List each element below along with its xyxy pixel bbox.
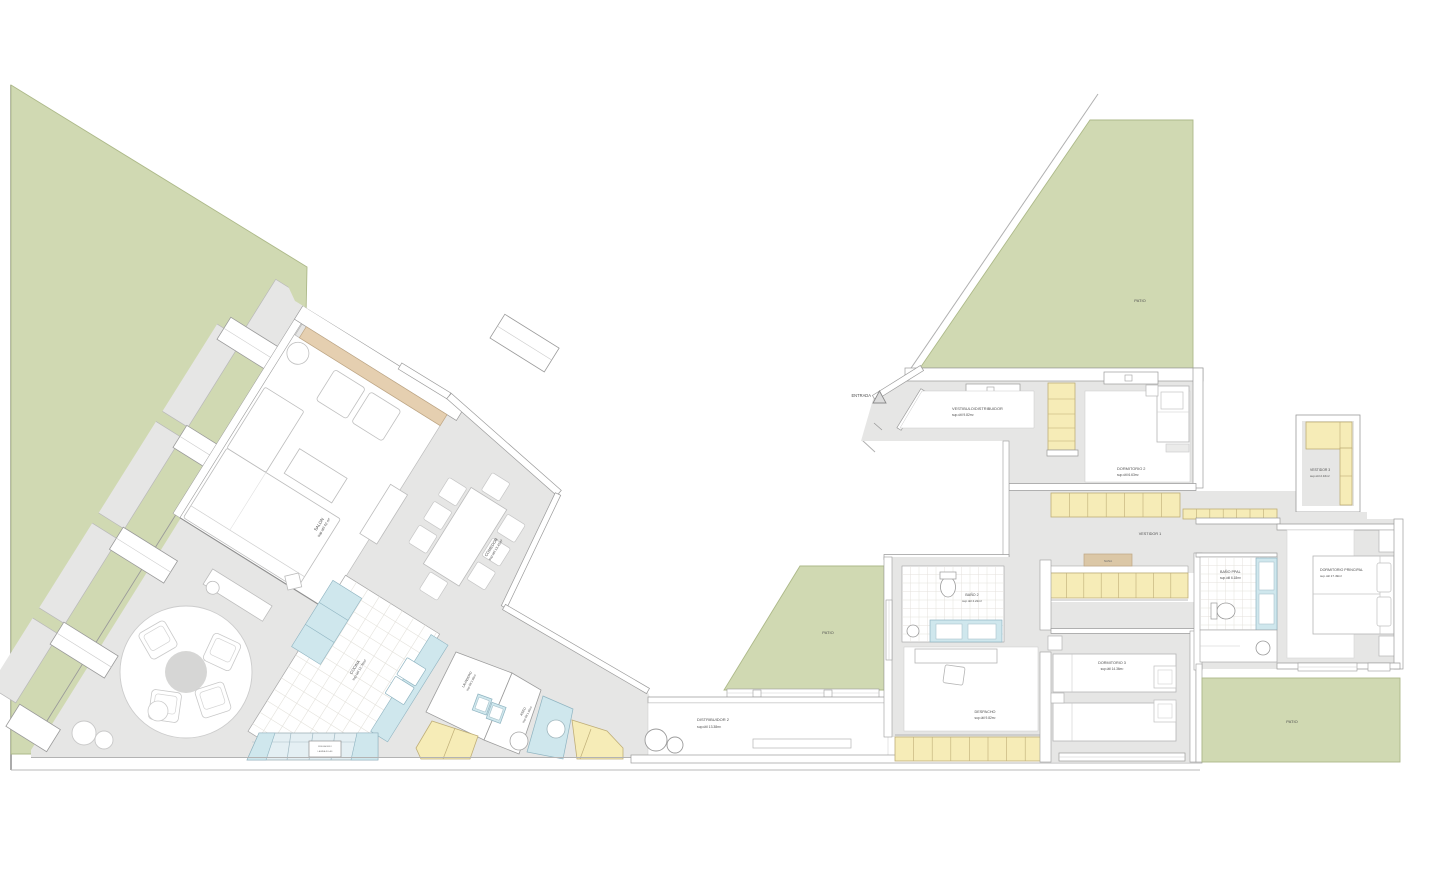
svg-text:sup.útil 6.63m²: sup.útil 6.63m² bbox=[1117, 473, 1140, 477]
svg-text:BAÑO 2: BAÑO 2 bbox=[965, 592, 978, 597]
svg-text:sup.útil 17.49m²: sup.útil 17.49m² bbox=[1320, 574, 1342, 578]
svg-text:DESPACHO: DESPACHO bbox=[974, 710, 995, 714]
svg-text:DORMITORIO 3: DORMITORIO 3 bbox=[1098, 661, 1126, 665]
svg-text:DORMITORIO 2: DORMITORIO 2 bbox=[1117, 466, 1145, 471]
svg-text:DISTRIBUIDOR 2: DISTRIBUIDOR 2 bbox=[697, 717, 730, 722]
svg-text:PATIO: PATIO bbox=[822, 630, 833, 635]
svg-text:sup.útil 14.36m²: sup.útil 14.36m² bbox=[1101, 667, 1124, 671]
svg-text:VESTIDOR 3: VESTIDOR 3 bbox=[1310, 468, 1330, 472]
svg-text:PATIO: PATIO bbox=[1134, 298, 1145, 303]
svg-text:BAÑO PPAL: BAÑO PPAL bbox=[1220, 569, 1241, 574]
svg-text:FREGADERO: FREGADERO bbox=[318, 745, 332, 748]
svg-text:PATIO: PATIO bbox=[1286, 719, 1297, 724]
svg-text:sup.útil 9.82m²: sup.útil 9.82m² bbox=[975, 716, 996, 720]
svg-text:sup.útil 6.18m²: sup.útil 6.18m² bbox=[1220, 576, 1241, 580]
svg-text:VESTIDOR 1: VESTIDOR 1 bbox=[1139, 532, 1162, 536]
svg-text:sup.útil 13.38m²: sup.útil 13.38m² bbox=[697, 725, 722, 729]
svg-text:sup.útil 4.22m²: sup.útil 4.22m² bbox=[962, 599, 982, 603]
svg-text:sup.útil 2.16m²: sup.útil 2.16m² bbox=[1310, 474, 1330, 478]
svg-text:VESTIBULO/DISTRIBUIDOR: VESTIBULO/DISTRIBUIDOR bbox=[952, 406, 1003, 411]
svg-text:DORMITORIO PRINCIPAL: DORMITORIO PRINCIPAL bbox=[1320, 568, 1363, 572]
svg-text:ENTRADA: ENTRADA bbox=[851, 393, 871, 398]
svg-text:NANA: NANA bbox=[1104, 559, 1112, 563]
svg-text:sup.útil 9.82m²: sup.útil 9.82m² bbox=[952, 413, 975, 417]
svg-text:LAVAVAJILLAS: LAVAVAJILLAS bbox=[318, 750, 333, 753]
